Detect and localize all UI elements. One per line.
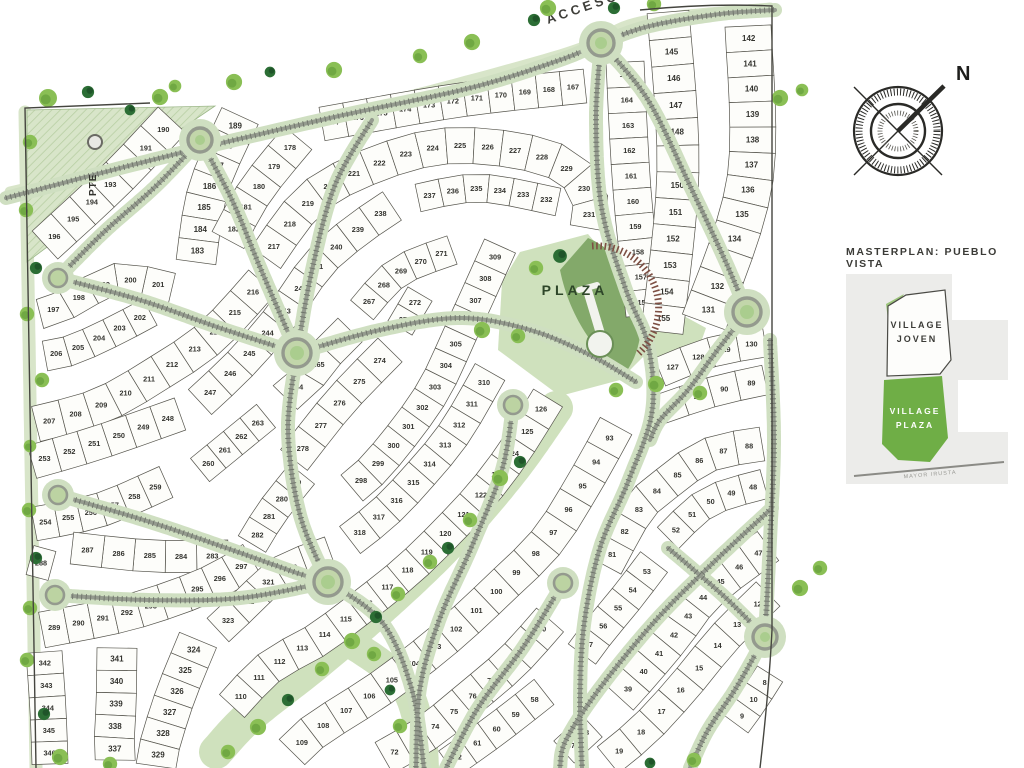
lot-number: 328 [156, 729, 170, 738]
tree-light-icon [413, 49, 427, 63]
tree-light-icon [221, 745, 235, 759]
lot-number: 289 [48, 623, 60, 632]
tree-light-icon [423, 555, 437, 569]
tree-light-icon [393, 719, 407, 733]
tree-light-icon [464, 34, 480, 50]
lot-number: 170 [495, 90, 507, 99]
lot-number: 195 [67, 215, 79, 224]
lot-number: 17 [657, 707, 665, 716]
tree-dark-icon [370, 611, 382, 623]
lot-number: 215 [229, 308, 241, 317]
tree-light-icon [250, 719, 266, 735]
tree-light-icon [772, 90, 788, 106]
lot-number: 327 [163, 708, 177, 717]
lot-number: 56 [599, 622, 607, 631]
lot-number: 268 [378, 280, 390, 289]
lot-number: 260 [202, 459, 214, 468]
lot-number: 324 [187, 646, 201, 655]
lot-number: 341 [110, 655, 124, 664]
lot-number: 184 [194, 225, 208, 234]
tree-light-icon [326, 62, 342, 78]
lot-number: 89 [747, 378, 755, 387]
lot-number: 60 [493, 724, 501, 733]
lot-number: 263 [252, 418, 264, 427]
lot-number: 111 [253, 673, 264, 682]
lot-number: 316 [391, 496, 403, 505]
lot-number: 201 [152, 280, 164, 289]
tree-dark-icon [645, 758, 656, 768]
lot-number: 88 [745, 442, 753, 451]
lot-number: 163 [622, 121, 634, 130]
cul-de-sac [547, 567, 579, 599]
tree-dark-icon [30, 552, 42, 564]
lot-number: 254 [39, 517, 52, 526]
lot-number: 317 [373, 513, 385, 522]
lot-number: 19 [615, 746, 623, 755]
lot-number: 75 [450, 707, 458, 716]
lot-number: 223 [400, 150, 412, 159]
lot-number: 231 [583, 210, 595, 219]
lot-number: 232 [540, 195, 552, 204]
lot-number: 212 [166, 360, 178, 369]
roundabout [274, 330, 320, 376]
lot-number: 211 [143, 374, 155, 383]
tree-light-icon [492, 470, 508, 486]
lot-number: 94 [592, 458, 601, 467]
lot-number: 72 [390, 748, 398, 757]
legend-plaza-label-line2: PLAZA [896, 420, 934, 430]
lot-number: 216 [247, 288, 259, 297]
lot-number: 139 [746, 110, 760, 119]
lot-number: 106 [363, 691, 375, 700]
lot-number: 134 [728, 234, 742, 243]
lot-number: 280 [276, 495, 288, 504]
lot-number: 238 [374, 209, 386, 218]
lot-number: 340 [110, 677, 124, 686]
lot-number: 303 [429, 383, 441, 392]
lot-number: 171 [471, 93, 483, 102]
lot-number: 131 [702, 306, 716, 315]
lot-number: 110 [235, 692, 247, 701]
lot-number: 276 [334, 398, 346, 407]
lot-number: 307 [469, 296, 481, 305]
lot-number: 41 [655, 649, 663, 658]
tree-light-icon [796, 84, 809, 97]
lot-number: 105 [386, 676, 398, 685]
lot-number: 47 [754, 549, 762, 558]
cul-de-sac [42, 479, 74, 511]
legend-joven-label-line1: VILLAGE [890, 320, 943, 330]
roundabout [179, 119, 221, 161]
tree-light-icon [813, 561, 827, 575]
lot-number: 138 [746, 135, 760, 144]
lot-number: 179 [268, 162, 280, 171]
lot-number: 259 [149, 482, 161, 491]
tree-light-icon [20, 307, 34, 321]
lot-number: 109 [296, 738, 308, 747]
lot-number: 76 [469, 691, 477, 700]
lot-number: 252 [63, 447, 75, 456]
lot-number: 338 [108, 722, 122, 731]
roundabout [305, 559, 351, 605]
tree-dark-icon [553, 249, 567, 263]
lot-number: 58 [531, 695, 539, 704]
lot-number: 202 [134, 313, 146, 322]
lot-number: 234 [494, 186, 507, 195]
lot-number: 137 [745, 161, 759, 170]
lot-number: 54 [629, 585, 638, 594]
lot-number: 98 [532, 549, 540, 558]
lot-number: 101 [470, 606, 482, 615]
lot-number: 97 [549, 528, 557, 537]
tree-light-icon [169, 80, 182, 93]
lot-number: 132 [711, 282, 725, 291]
lot-number: 253 [38, 454, 50, 463]
lot-number: 292 [121, 608, 133, 617]
tree-light-icon [315, 662, 329, 676]
lot-number: 272 [409, 298, 421, 307]
lot-number: 40 [640, 667, 648, 676]
lot-number: 286 [113, 549, 125, 558]
lot-number: 245 [243, 349, 255, 358]
lot-number: 50 [707, 497, 715, 506]
legend-card: VILLAGE JOVEN VILLAGE PLAZA MAYOR IRUSTA [846, 268, 1016, 492]
lot-number: 164 [621, 96, 634, 105]
tree-dark-icon [38, 708, 50, 720]
lot-number: 162 [623, 146, 635, 155]
lot-number: 59 [512, 710, 520, 719]
lot-number: 169 [519, 88, 531, 97]
lot-number: 159 [629, 222, 641, 231]
lot-number: 297 [235, 562, 247, 571]
lot-number: 117 [382, 582, 394, 591]
tree-dark-icon [442, 542, 454, 554]
lot-number: 100 [490, 587, 502, 596]
lot-number: 203 [114, 324, 126, 333]
lot-number: 127 [667, 362, 679, 371]
lot-number: 275 [353, 377, 365, 386]
lot-number: 14 [714, 641, 723, 650]
legend-card-notch-right [958, 380, 1008, 432]
legend-joven-label-line2: JOVEN [897, 334, 938, 344]
lot-number: 262 [235, 432, 247, 441]
tree-light-icon [474, 322, 490, 338]
lot-number: 255 [62, 513, 74, 522]
lot-number: 145 [665, 48, 679, 57]
lot-number: 113 [296, 644, 308, 653]
lot-number: 112 [274, 657, 286, 666]
lot-number: 290 [72, 619, 84, 628]
lot-number: 298 [355, 476, 367, 485]
lot-number: 284 [175, 552, 188, 561]
lot-number: 43 [684, 611, 692, 620]
lot-number: 249 [137, 423, 149, 432]
lot-number: 343 [40, 681, 52, 690]
lot-number: 167 [567, 83, 579, 92]
tree-light-icon [52, 749, 68, 765]
lot-number: 154 [660, 288, 674, 297]
lot-number: 81 [608, 550, 616, 559]
lot-number: 118 [402, 566, 414, 575]
lot-number: 46 [735, 563, 743, 572]
lot-number: 285 [144, 551, 156, 560]
lot-number: 48 [749, 482, 757, 491]
cul-de-sac [39, 579, 71, 611]
lot-number: 218 [284, 220, 296, 229]
lot-number: 15 [695, 663, 703, 672]
masterplan-title: MASTERPLAN: PUEBLO VISTA [846, 246, 1024, 270]
tree-light-icon [20, 653, 34, 667]
plaza-label: PLAZA [542, 282, 609, 298]
lot-number: 120 [439, 529, 451, 538]
pte-gate-marker [88, 135, 102, 149]
lot-number: 95 [579, 481, 587, 490]
plaza-path-circle [587, 331, 613, 357]
lot-number: 8 [763, 678, 767, 687]
lot-number: 208 [70, 409, 82, 418]
lot-number: 96 [564, 505, 572, 514]
lot-number: 209 [95, 400, 107, 409]
lot-number: 222 [373, 158, 385, 167]
tree-light-icon [39, 89, 57, 107]
lot-number: 82 [621, 527, 629, 536]
tree-light-icon [687, 753, 701, 767]
lot-number: 251 [88, 439, 100, 448]
tree-light-icon [529, 261, 543, 275]
lot-number: 42 [670, 631, 678, 640]
lot-number: 323 [222, 616, 234, 625]
lot-number: 84 [653, 487, 662, 496]
lot-number: 326 [170, 687, 184, 696]
tree-light-icon [693, 386, 707, 400]
lot-number: 183 [191, 247, 205, 256]
lot-number: 250 [113, 431, 125, 440]
lot-number: 16 [677, 686, 685, 695]
lot-number: 51 [688, 510, 696, 519]
lot-number: 186 [203, 182, 217, 191]
compass-rose: N [828, 46, 1022, 216]
lot-number: 309 [489, 252, 501, 261]
lot-number: 210 [120, 388, 132, 397]
lot-number: 83 [635, 505, 643, 514]
lot-number: 74 [431, 722, 440, 731]
lot-number: 310 [478, 378, 490, 387]
lot-number: 221 [348, 169, 360, 178]
tree-dark-icon [385, 685, 396, 696]
tree-light-icon [152, 89, 168, 105]
lot-number: 44 [699, 593, 708, 602]
tree-dark-icon [82, 86, 94, 98]
lot-number: 305 [450, 340, 462, 349]
roundabout [724, 289, 770, 335]
lot-number: 178 [284, 143, 296, 152]
lot-number: 269 [395, 267, 407, 276]
lot-number: 300 [388, 441, 400, 450]
tree-light-icon [367, 647, 381, 661]
lot-number: 126 [535, 405, 547, 414]
lot-number: 206 [50, 349, 62, 358]
lot-number: 329 [151, 751, 165, 760]
lot-number: 93 [605, 434, 613, 443]
lot-number: 141 [743, 59, 757, 68]
lot-number: 225 [454, 141, 466, 150]
lot-number: 321 [262, 578, 274, 587]
tree-light-icon [22, 503, 36, 517]
lot-number: 213 [189, 345, 201, 354]
lot-number: 342 [39, 659, 51, 668]
lot-number: 239 [352, 225, 364, 234]
lot-number: 102 [450, 624, 462, 633]
tree-light-icon [511, 329, 525, 343]
lot-number: 85 [673, 470, 681, 479]
lot-number: 248 [162, 414, 174, 423]
lot-number: 125 [521, 427, 533, 436]
lot-number: 185 [197, 203, 211, 212]
roundabout [579, 21, 623, 65]
lot-number: 287 [81, 545, 93, 554]
tree-dark-icon [282, 694, 294, 706]
lot-number: 304 [440, 361, 453, 370]
lot-number: 227 [509, 146, 521, 155]
lot-number: 197 [47, 305, 59, 314]
tree-dark-icon [528, 14, 540, 26]
lot-number: 315 [407, 478, 419, 487]
lot-number: 115 [340, 615, 352, 624]
lot-number: 271 [435, 249, 447, 258]
tree-light-icon [226, 74, 242, 90]
lot-number: 52 [672, 525, 680, 534]
cul-de-sac [497, 389, 529, 421]
legend-village-plaza-shape[interactable] [882, 376, 948, 462]
lot-number: 196 [48, 232, 60, 241]
tree-light-icon [35, 373, 49, 387]
tree-light-icon [344, 633, 360, 649]
legend-plaza-label-line1: VILLAGE [890, 406, 941, 416]
lot-number: 311 [466, 400, 478, 409]
lot-number: 108 [317, 721, 329, 730]
lot-number: 226 [482, 142, 494, 151]
lot-number: 237 [424, 191, 436, 200]
lot-number: 194 [86, 197, 99, 206]
lot-number: 291 [97, 614, 109, 623]
lot-number: 147 [669, 101, 683, 110]
lot-number: 337 [108, 744, 122, 753]
lot-number: 53 [643, 567, 651, 576]
tree-light-icon [463, 513, 477, 527]
lot-number: 153 [663, 261, 677, 270]
lot-number: 281 [263, 512, 275, 521]
legend-village-joven-shape[interactable] [887, 290, 951, 376]
lot-number: 217 [268, 242, 280, 251]
lot-number: 168 [543, 85, 555, 94]
lot-number: 146 [667, 74, 681, 83]
tree-dark-icon [30, 262, 42, 274]
lot-number: 61 [473, 739, 481, 748]
lot-number: 283 [206, 552, 218, 561]
lot-number: 240 [330, 242, 342, 251]
lot-number: 10 [750, 695, 758, 704]
tree-dark-icon [608, 2, 620, 14]
lot-number: 302 [416, 403, 428, 412]
lot-number: 318 [354, 528, 366, 537]
lot-number: 236 [447, 186, 459, 195]
lot-number: 193 [104, 180, 116, 189]
lot-number: 261 [219, 445, 231, 454]
tree-light-icon [540, 0, 556, 16]
lot-number: 152 [666, 235, 680, 244]
roundabout [744, 616, 786, 658]
lot-number: 135 [735, 210, 749, 219]
lot-number: 258 [128, 492, 140, 501]
lot-number: 312 [453, 421, 465, 430]
lot-number: 87 [719, 447, 727, 456]
lot-number: 99 [512, 568, 520, 577]
tree-dark-icon [125, 105, 136, 116]
lot-number: 299 [372, 459, 384, 468]
lot-number: 180 [253, 182, 265, 191]
lot-number: 204 [93, 334, 106, 343]
lot-number: 189 [229, 121, 243, 130]
tree-dark-icon [265, 67, 276, 78]
lot-number: 160 [627, 197, 639, 206]
lot-number: 191 [140, 143, 152, 152]
lot-number: 345 [43, 726, 55, 735]
tree-dark-icon [514, 456, 526, 468]
lot-number: 142 [742, 34, 756, 43]
lot-number: 136 [741, 186, 755, 195]
lot-number: 219 [302, 199, 314, 208]
lot-number: 278 [297, 444, 309, 453]
lot-number: 228 [536, 152, 548, 161]
tree-light-icon [23, 601, 37, 615]
lot-number: 140 [745, 85, 759, 94]
lot-number: 247 [204, 388, 216, 397]
tree-light-icon [648, 376, 664, 392]
lot-number: 277 [315, 421, 327, 430]
lot-number: 190 [157, 125, 169, 134]
lot-number: 49 [727, 489, 735, 498]
lot-number: 295 [191, 585, 203, 594]
legend-card-notch-top [952, 274, 1008, 320]
lot-number: 314 [424, 460, 437, 469]
lot-number: 233 [517, 190, 529, 199]
lot-number: 130 [745, 340, 757, 349]
lot-number: 18 [637, 728, 645, 737]
lot-number: 207 [43, 416, 55, 425]
lot-number: 55 [614, 604, 622, 613]
lot-number: 107 [340, 706, 352, 715]
masterplan-screenshot: { "map": { "labels": { "acceso": "ACCESO… [0, 0, 1024, 768]
lot-number: 246 [224, 369, 236, 378]
cul-de-sac [42, 262, 74, 294]
tree-light-icon [391, 587, 405, 601]
lot-number: 230 [578, 184, 590, 193]
lot-number: 200 [124, 275, 136, 284]
tree-light-icon [792, 580, 808, 596]
lot-number: 39 [624, 685, 632, 694]
lot-number: 296 [214, 574, 226, 583]
lot-number: 270 [415, 257, 427, 266]
lot-number: 86 [695, 456, 703, 465]
lot-number: 205 [72, 343, 84, 352]
lot-number: 114 [319, 630, 332, 639]
lot-number: 9 [740, 711, 744, 720]
lot-number: 161 [625, 172, 637, 181]
lot-number: 282 [251, 530, 263, 539]
lot-number: 308 [479, 274, 491, 283]
lot-number: 224 [427, 144, 440, 153]
compass-north-label: N [956, 63, 970, 85]
